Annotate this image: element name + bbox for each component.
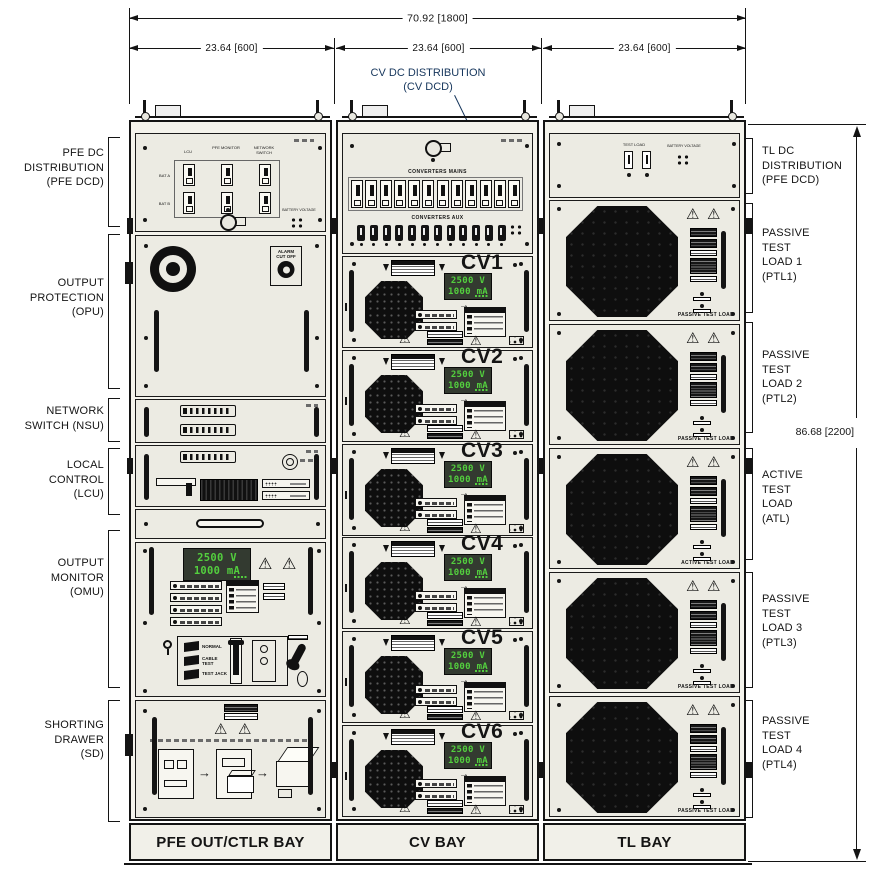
bay-cv: CONVERTERS MAINS CONVERTERS AUX CV1 2500…	[336, 120, 539, 821]
dimension-arrow	[543, 45, 552, 51]
panel-nsu	[135, 399, 326, 443]
side-label-line: (PTL2)	[762, 392, 887, 407]
module-caption: PASSIVE TEST LOAD	[678, 436, 734, 442]
info-plate	[690, 276, 717, 282]
arrow-down-icon	[439, 733, 445, 740]
dimension-text: 23.64 [600]	[613, 43, 675, 54]
bay-pfe-out-ctlr: LCU PFE MONITOR NETWORK SWITCH BAT A BAT…	[129, 120, 332, 821]
indicator-row	[415, 779, 457, 788]
hinge	[746, 458, 752, 474]
side-label-line: SWITCH (NSU)	[0, 419, 104, 434]
tick-mark	[345, 678, 347, 686]
warning-icon: ⚠	[707, 455, 720, 470]
lifting-eyebolt	[523, 100, 526, 117]
arrow-down-icon	[383, 733, 389, 740]
screw	[557, 142, 561, 146]
extension-line	[748, 124, 866, 125]
screw	[519, 731, 523, 735]
converter-connector	[509, 524, 524, 533]
info-plate	[263, 583, 285, 590]
info-plate	[690, 735, 717, 744]
handle-slot	[721, 603, 726, 661]
module-info-label	[391, 635, 435, 651]
screw	[318, 218, 322, 222]
current-readout: 1000 mA	[448, 287, 488, 297]
screw	[352, 713, 356, 717]
handle-slot	[349, 551, 354, 613]
indicator-dot	[226, 208, 230, 212]
indicator-dot	[700, 664, 704, 668]
breaker-row-label: BAT B	[144, 202, 170, 207]
drawer-handle	[196, 519, 264, 528]
converter-breaker	[508, 180, 520, 208]
step-arrow-icon: →	[198, 767, 211, 779]
side-label-line: CONTROL	[0, 473, 104, 488]
circuit-breaker	[183, 164, 195, 186]
side-label-line: PASSIVE	[762, 714, 887, 729]
screw	[317, 621, 321, 625]
switch-position-label: TEST JACK	[202, 671, 228, 676]
handle-slot	[524, 739, 529, 801]
converter-connector	[509, 805, 524, 814]
side-connector	[125, 734, 133, 756]
screw	[732, 142, 736, 146]
dimension-bay2-width: 23.64 [600]	[336, 48, 541, 49]
callout-line: CV DC DISTRIBUTION	[348, 66, 508, 80]
dimension-bay3-width: 23.64 [600]	[543, 48, 746, 49]
warning-icon: ⚠	[686, 455, 699, 470]
screw	[352, 807, 356, 811]
panel-cv-dcd: CONVERTERS MAINS CONVERTERS AUX	[342, 133, 533, 254]
handle-slot	[524, 645, 529, 707]
module-info-label	[391, 448, 435, 464]
test-load-module: ⚠ ⚠ PASSIVE TEST LOAD	[549, 696, 740, 817]
vent-grille	[200, 479, 258, 501]
panel-sd: ⚠ ⚠ → →	[135, 700, 326, 818]
breaker-column-label: PFE MONITOR	[209, 146, 243, 151]
warning-icon: ⚠	[470, 803, 482, 816]
extension-line	[334, 38, 335, 104]
mains-row-label: CONVERTERS MAINS	[343, 170, 532, 176]
section-label-left: SHORTINGDRAWER(SD)	[0, 718, 104, 762]
converter-display: 2500 V 1000 mA	[444, 648, 492, 675]
cv-converter-module: CV2 2500 V 1000 mA → ⚠ ⚠	[342, 350, 533, 442]
converter-breaker	[394, 180, 406, 208]
screw	[731, 455, 735, 459]
info-plate	[427, 331, 463, 338]
info-plate	[690, 258, 717, 274]
aux-fuse	[434, 225, 442, 241]
breaker-column-label: LCU	[171, 150, 205, 155]
converter-breaker	[451, 180, 463, 208]
warning-icon: ⚠	[707, 207, 720, 222]
voltage-readout: 2500 V	[451, 651, 485, 661]
handle-slot	[314, 407, 319, 437]
screw	[513, 732, 517, 736]
arrow-down-icon	[439, 358, 445, 365]
indicator-row	[415, 697, 457, 706]
bay-nameplate: TL BAY	[543, 823, 746, 861]
converter-breaker	[480, 180, 492, 208]
side-label-line: TEST	[762, 241, 887, 256]
screw	[143, 807, 147, 811]
tick-mark	[345, 397, 347, 405]
bay-nameplate: PFE OUT/CTLR BAY	[129, 823, 332, 861]
test-jack-panel	[252, 640, 276, 682]
dimension-arrow	[853, 126, 861, 137]
converter-connector	[509, 336, 524, 345]
alarm-cutoff-switch: ALARM CUT OFF	[270, 246, 302, 286]
handle-slot	[304, 310, 309, 372]
voltage-readout: 2500 V	[197, 552, 237, 564]
load-breaker	[624, 151, 633, 169]
screw	[525, 242, 529, 246]
info-plate	[427, 706, 463, 713]
switch-position-label: CABLE TEST	[202, 656, 228, 666]
converter-connector	[509, 711, 524, 720]
fan-grille	[566, 330, 678, 441]
bay-tl: TEST LOAD BATTERY VOLTAGE ⚠ ⚠ PAS	[543, 120, 746, 821]
indicator-row	[415, 404, 457, 413]
converter-display: 2500 V 1000 mA	[444, 742, 492, 769]
converter-breaker	[365, 180, 377, 208]
warning-icon: ⚠	[686, 207, 699, 222]
screw	[557, 312, 561, 316]
info-plate	[693, 421, 711, 425]
screw	[557, 455, 561, 459]
output-monitor-display: 2500 V 1000 mA	[183, 548, 251, 581]
arrow-down-icon	[383, 358, 389, 365]
hinge	[746, 762, 752, 778]
indicator-dot	[627, 173, 631, 177]
screw	[557, 684, 561, 688]
drawer-detail	[177, 760, 187, 769]
side-label-line: TEST	[762, 363, 887, 378]
info-plate	[690, 476, 717, 485]
handle-slot	[721, 479, 726, 537]
panel-pfe-dcd: LCU PFE MONITOR NETWORK SWITCH BAT A BAT…	[135, 133, 326, 232]
dimension-arrow	[737, 15, 746, 21]
side-label-line: (PFE DCD)	[0, 175, 104, 190]
info-plate	[427, 527, 463, 533]
screw	[557, 579, 561, 583]
hinge	[127, 458, 133, 474]
screw	[525, 144, 529, 148]
warning-icon: ⚠	[686, 331, 699, 346]
info-plate	[224, 713, 258, 720]
cv-converter-module: CV1 2500 V 1000 mA → ⚠ ⚠	[342, 256, 533, 348]
module-label: CV2	[461, 345, 503, 369]
converter-breaker	[437, 180, 449, 208]
top-junction-box	[362, 105, 388, 117]
lever-slot	[230, 638, 242, 684]
side-label-line: DRAWER	[0, 733, 104, 748]
screw	[317, 689, 321, 693]
info-plate	[690, 228, 717, 237]
status-legend	[226, 580, 259, 613]
screw	[352, 262, 356, 266]
panel-opu: ALARM CUT OFF	[135, 235, 326, 397]
side-label-line: LOCAL	[0, 458, 104, 473]
indicator-dot	[700, 428, 704, 432]
side-label-line: PASSIVE	[762, 592, 887, 607]
lifting-eyebolt	[557, 100, 560, 117]
screw	[317, 549, 321, 553]
screw	[513, 638, 517, 642]
converter-breaker	[465, 180, 477, 208]
handle-slot	[314, 454, 319, 500]
converter-display: 2500 V 1000 mA	[444, 554, 492, 581]
switch-flag	[184, 669, 199, 680]
screw	[352, 432, 356, 436]
panel-lcu	[135, 445, 326, 507]
converter-display: 2500 V 1000 mA	[444, 273, 492, 300]
screw	[143, 709, 147, 713]
extension-line	[129, 8, 130, 104]
rack-elevation-drawing: 70.92 [1800] 23.64 [600] 23.64 [600] 23.…	[0, 0, 893, 880]
bay-nameplate: CV BAY	[336, 823, 539, 861]
screw	[731, 331, 735, 335]
screw	[519, 262, 523, 266]
screw	[513, 451, 517, 455]
indicator-row	[415, 322, 457, 331]
arrow-down-icon	[383, 452, 389, 459]
handle-slot	[524, 364, 529, 426]
section-bracket	[108, 448, 120, 515]
dimension-text: 86.68 [2200]	[764, 426, 854, 438]
handle-slot	[154, 310, 159, 372]
side-label-line: OUTPUT	[0, 276, 104, 291]
screw	[143, 621, 147, 625]
indicator-dot	[431, 158, 435, 162]
drawer-step-2	[216, 749, 252, 799]
current-readout: 1000 mA	[448, 381, 488, 391]
voltage-readout: 2500 V	[451, 276, 485, 286]
screw	[352, 338, 356, 342]
section-bracket	[108, 398, 120, 442]
info-plate	[263, 593, 285, 600]
info-plate	[690, 754, 717, 770]
fan-grille	[566, 206, 678, 317]
info-plate	[690, 622, 717, 628]
warning-icon: ⚠	[258, 557, 272, 573]
screw	[519, 637, 523, 641]
arrow-down-icon	[439, 452, 445, 459]
rotary-handle	[289, 643, 307, 668]
module-label: CV4	[461, 532, 503, 556]
screw	[557, 703, 561, 707]
tick-mark	[345, 772, 347, 780]
indicator-row	[415, 310, 457, 319]
drawer-detail	[164, 780, 187, 787]
floor-line	[124, 863, 752, 865]
section-label-left: OUTPUTPROTECTION(OPU)	[0, 276, 104, 320]
info-plate	[427, 612, 463, 619]
warning-icon: ⚠	[707, 331, 720, 346]
warning-icon: ⚠	[707, 703, 720, 718]
battery-connector	[676, 154, 690, 166]
arrow-down-icon	[383, 639, 389, 646]
info-plate	[427, 339, 463, 345]
warning-icon: ⚠	[399, 613, 411, 626]
screw	[315, 384, 319, 388]
section-label-left: NETWORKSWITCH (NSU)	[0, 404, 104, 433]
converter-mains-breakers	[351, 180, 520, 208]
current-readout: 1000 mA	[194, 565, 240, 577]
cv-converter-module: CV6 2500 V 1000 mA → ⚠ ⚠	[342, 725, 533, 817]
arrow-down-icon	[439, 639, 445, 646]
section-label-right: TL DCDISTRIBUTION(PFE DCD)	[762, 144, 887, 188]
aux-fuse	[447, 225, 455, 241]
voltage-readout: 2500 V	[451, 557, 485, 567]
cv-converter-module: CV4 2500 V 1000 mA → ⚠ ⚠	[342, 537, 533, 629]
aux-fuse	[498, 225, 506, 241]
side-label-line: SHORTING	[0, 718, 104, 733]
battery-connector	[290, 217, 304, 229]
dimension-bay1-width: 23.64 [600]	[129, 48, 334, 49]
handle-slot	[721, 727, 726, 785]
lcu-ports	[180, 451, 236, 463]
screw	[731, 703, 735, 707]
info-plate	[690, 600, 717, 609]
drawer-step-3	[272, 745, 320, 801]
screw	[557, 331, 561, 335]
info-plate	[427, 714, 463, 720]
warning-icon: ⚠	[399, 520, 411, 533]
module-caption: ACTIVE TEST LOAD	[681, 560, 734, 566]
aux-fuse	[383, 225, 391, 241]
info-plate	[427, 433, 463, 439]
battery-connector-label: BATTERY VOLTAGE	[282, 208, 316, 212]
dimension-arrow	[532, 45, 541, 51]
section-label-right: PASSIVETESTLOAD 1(PTL1)	[762, 226, 887, 284]
breaker-row-label: BAT A	[144, 174, 170, 179]
screw	[352, 637, 356, 641]
info-plate	[224, 704, 258, 712]
screw	[144, 336, 148, 340]
module-info-label	[391, 541, 435, 557]
indicator-dot	[700, 540, 704, 544]
alarm-cutoff-label: CUT OFF	[271, 254, 301, 259]
side-label-line: (OMU)	[0, 585, 104, 600]
voltage-readout: 2500 V	[451, 464, 485, 474]
handle-slot	[524, 458, 529, 520]
side-label-line: ACTIVE	[762, 468, 887, 483]
info-plate	[690, 506, 717, 522]
info-plate	[690, 250, 717, 256]
screw	[143, 146, 147, 150]
drive-bay	[262, 479, 310, 488]
indicator-dot	[700, 552, 704, 556]
load-breaker	[642, 151, 651, 169]
screw	[513, 263, 517, 267]
converter-breaker	[494, 180, 506, 208]
aux-fuse	[459, 225, 467, 241]
module-caption: PASSIVE TEST LOAD	[678, 808, 734, 814]
battery-connector-label: BATTERY VOLTAGE	[666, 144, 702, 148]
handle-slot	[349, 739, 354, 801]
part-number-text	[294, 139, 314, 142]
info-plate	[690, 363, 717, 372]
module-label: CV3	[461, 439, 503, 463]
tick-mark	[345, 491, 347, 499]
handle-slot	[349, 458, 354, 520]
switch-flag	[184, 655, 199, 666]
indicator-dot	[700, 800, 704, 804]
handle-slot	[144, 454, 149, 500]
screw	[316, 522, 320, 526]
section-label-left: LOCALCONTROL(LCU)	[0, 458, 104, 502]
indicator-dot	[645, 173, 649, 177]
info-plate	[690, 724, 717, 733]
fan-grille	[566, 702, 678, 813]
tick-mark	[345, 584, 347, 592]
screw	[513, 544, 517, 548]
module-label: CV1	[461, 251, 503, 275]
part-number-text	[306, 450, 318, 453]
aux-fuse	[395, 225, 403, 241]
aux-fuse	[370, 225, 378, 241]
screw	[557, 207, 561, 211]
screw	[519, 543, 523, 547]
side-label-line: PROTECTION	[0, 291, 104, 306]
network-switch-ports	[180, 424, 236, 436]
info-plate	[690, 487, 717, 496]
interlock-connector	[297, 671, 308, 687]
indicator-row	[170, 617, 222, 626]
side-label-line: (SD)	[0, 747, 104, 762]
section-label-right: PASSIVETESTLOAD 2(PTL2)	[762, 348, 887, 406]
info-plate	[690, 374, 717, 380]
screw	[519, 450, 523, 454]
screw	[144, 384, 148, 388]
emergency-stop-button	[150, 246, 196, 292]
key-switch-icon	[425, 140, 451, 154]
switch-lever	[233, 645, 239, 675]
screw	[352, 450, 356, 454]
network-switch-ports	[180, 405, 236, 417]
converter-connector	[509, 430, 524, 439]
key-switch-icon	[220, 214, 246, 228]
screw	[350, 144, 354, 148]
side-label-line: LOAD	[762, 497, 887, 512]
top-junction-box	[569, 105, 595, 117]
indicator-row	[415, 603, 457, 612]
voltage-readout: 2500 V	[451, 745, 485, 755]
indicator-row	[170, 605, 222, 614]
handle-slot	[721, 231, 726, 289]
panel-omu: 2500 V 1000 mA ⚠ ⚠ NORMAL CABLE TEST TES…	[135, 542, 326, 697]
test-load-module: ⚠ ⚠ PASSIVE TEST LOAD	[549, 200, 740, 321]
circuit-breaker	[221, 164, 233, 186]
side-label-line: (ATL)	[762, 512, 887, 527]
info-plate	[690, 498, 717, 504]
info-plate	[690, 648, 717, 654]
switch-flag	[184, 641, 199, 652]
side-label-line: (LCU)	[0, 487, 104, 502]
screw	[513, 357, 517, 361]
module-caption: PASSIVE TEST LOAD	[678, 312, 734, 318]
info-plate	[690, 239, 717, 248]
info-plate	[427, 800, 463, 807]
side-label-line: NETWORK	[0, 404, 104, 419]
section-bracket	[108, 234, 120, 389]
dimension-overall-width: 70.92 [1800]	[129, 18, 746, 19]
converter-display: 2500 V 1000 mA	[444, 367, 492, 394]
top-junction-box	[155, 105, 181, 117]
aux-fuse	[357, 225, 365, 241]
screw	[317, 709, 321, 713]
